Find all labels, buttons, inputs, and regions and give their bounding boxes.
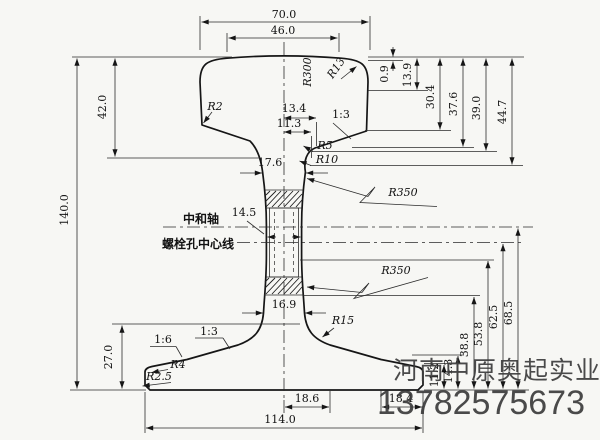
- dim-total-height: 140.0: [58, 194, 71, 226]
- dim-38-8: 38.8: [458, 333, 471, 358]
- watermark: 河南中原奥起实业 13782575673: [377, 357, 600, 422]
- dim-0-9: 0.9: [378, 65, 391, 83]
- radius-base-bottom-corner: R2.5: [145, 370, 172, 383]
- dim-base-height: 27.0: [102, 345, 115, 370]
- radius-base-fillet: R15: [331, 314, 354, 327]
- label-neutral-axis: 中和轴: [183, 211, 219, 226]
- dim-13-9: 13.9: [401, 63, 414, 88]
- dim-web-top: 17.6: [258, 156, 283, 169]
- dim-head-flat: 46.0: [271, 24, 296, 37]
- watermark-phone: 13782575673: [377, 384, 585, 422]
- dim-head-width: 70.0: [272, 8, 297, 21]
- dim-53-8: 53.8: [472, 322, 485, 347]
- rail-section-drawing: 70.0 46.0 140.0 42.0 27.0 0.9 13.9 30.4 …: [0, 0, 600, 440]
- radius-fillet5: R5: [316, 139, 332, 152]
- dim-head-height: 42.0: [96, 95, 109, 120]
- dim-web-mid: 14.5: [232, 206, 257, 219]
- dim-62-5: 62.5: [487, 305, 500, 330]
- dim-13-4: 13.4: [282, 102, 307, 115]
- slope-base-inner: 1:3: [200, 325, 218, 338]
- dim-11-3: 11.3: [277, 117, 302, 130]
- radius-web-upper: R350: [387, 186, 417, 199]
- dim-30-4: 30.4: [424, 85, 437, 110]
- slope-head-side: 1:3: [332, 108, 350, 121]
- slope-base-outer: 1:6: [154, 333, 172, 346]
- axis-labels: 中和轴 螺栓孔中心线: [162, 211, 234, 251]
- dim-39-0: 39.0: [470, 96, 483, 121]
- dim-18-6: 18.6: [295, 392, 320, 405]
- radius-fillet10: R10: [315, 153, 338, 166]
- dim-base-width: 114.0: [264, 413, 296, 426]
- dim-68-5: 68.5: [502, 301, 515, 326]
- label-bolt-centerline: 螺栓孔中心线: [162, 236, 234, 251]
- hatch-band-bottom: [265, 278, 302, 294]
- radius-web-lower: R350: [380, 264, 410, 277]
- radius-crown: R300: [301, 57, 314, 87]
- dim-37-6: 37.6: [447, 92, 460, 117]
- drawing-svg: 70.0 46.0 140.0 42.0 27.0 0.9 13.9 30.4 …: [0, 0, 600, 440]
- watermark-company: 河南中原奥起实业: [393, 357, 600, 385]
- dim-web-bottom: 16.9: [272, 298, 297, 311]
- dim-44-7: 44.7: [496, 100, 509, 125]
- radius-head-left: R2: [206, 100, 222, 113]
